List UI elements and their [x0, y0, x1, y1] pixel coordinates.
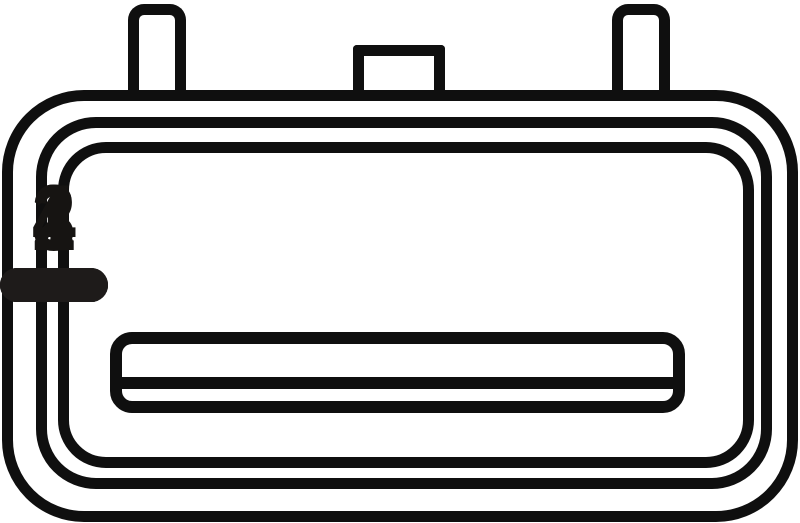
connector-diagram: 4321	[0, 0, 800, 523]
mounting-tab-right	[612, 4, 670, 99]
pin-group: 1	[0, 182, 108, 302]
mounting-tab-left	[128, 4, 186, 99]
keyway-divider-line	[121, 377, 674, 389]
connector-cavity-outline	[58, 142, 754, 468]
pin-number-label: 1	[9, 182, 100, 254]
pin-terminal	[0, 268, 108, 302]
keyway-slot	[110, 332, 685, 413]
